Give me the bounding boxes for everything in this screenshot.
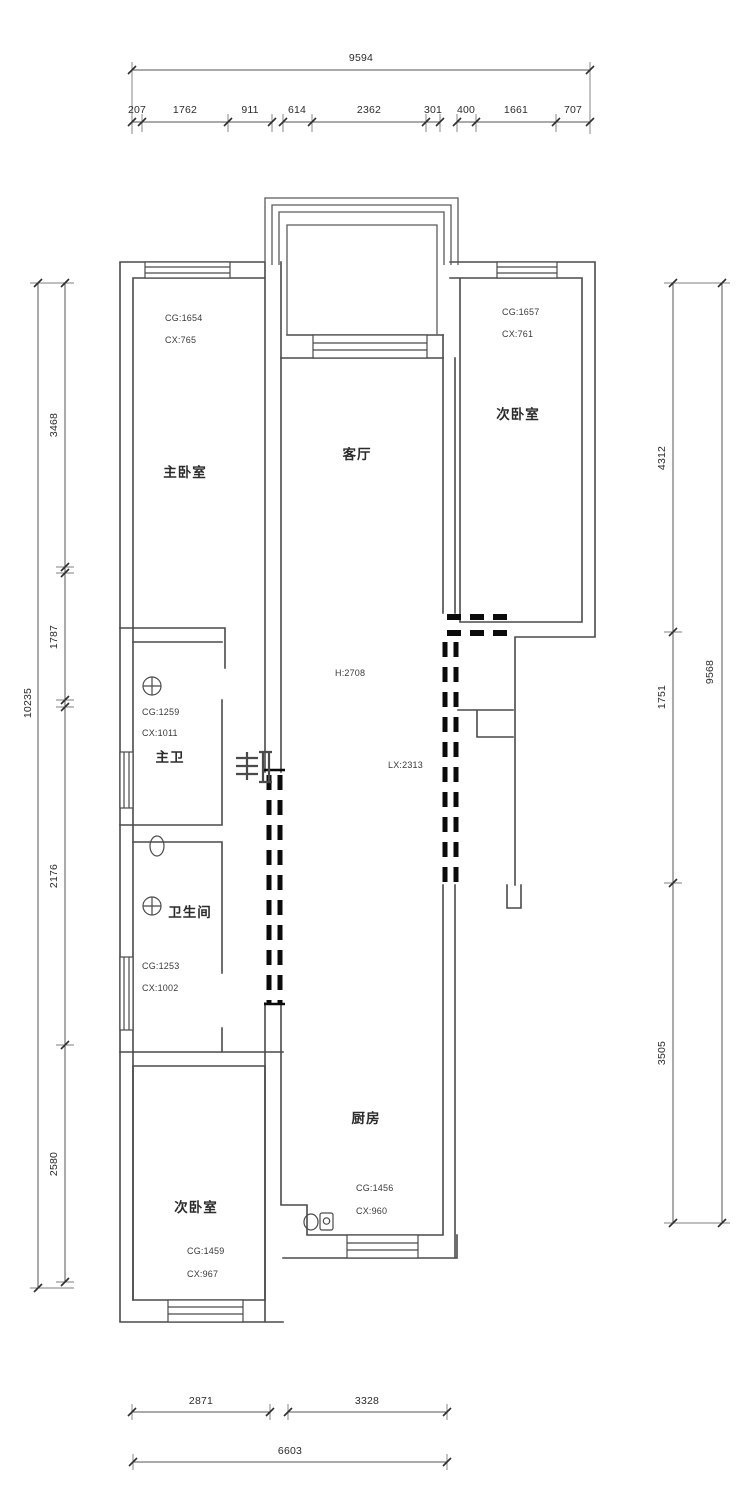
dim-bottom-seg-1: 3328 bbox=[355, 1395, 379, 1407]
window-frame bbox=[497, 262, 557, 278]
dim-top-seg-4: 2362 bbox=[357, 104, 381, 116]
window-frame bbox=[120, 957, 133, 1030]
balcony-rail-inner bbox=[279, 212, 444, 265]
floor-plan-canvas: 9594 207 1762 911 614 2362 301 400 1661 … bbox=[0, 0, 740, 1500]
dim-top-seg-1: 1762 bbox=[173, 104, 197, 116]
window-master-top bbox=[145, 262, 230, 278]
room-labels: 主卧室 CG:1654 CX:765 次卧室 CG:1657 CX:761 客厅… bbox=[142, 307, 540, 1279]
window-living-balcony bbox=[313, 335, 427, 358]
window-master-bath-left bbox=[120, 752, 133, 808]
window-bedroom-sw-bottom bbox=[168, 1300, 243, 1322]
room-label-kitchen: 厨房 bbox=[352, 1110, 381, 1126]
meter-box bbox=[320, 1213, 333, 1230]
anno-cx-bedroom-sw: CX:967 bbox=[187, 1269, 218, 1279]
room-label-living: 客厅 bbox=[342, 446, 372, 462]
floor-plan-page: 9594 207 1762 911 614 2362 301 400 1661 … bbox=[0, 0, 740, 1500]
dim-right-seg-2: 3505 bbox=[656, 1041, 668, 1065]
kitchen-pipe-icon bbox=[304, 1214, 318, 1230]
dim-top-seg-6: 400 bbox=[457, 104, 475, 116]
dim-left-seg-0: 3468 bbox=[48, 413, 60, 437]
bathroom-door-knob-icon bbox=[150, 836, 164, 856]
dim-top-total: 9594 bbox=[349, 52, 373, 64]
anno-cx-bathroom: CX:1002 bbox=[142, 983, 178, 993]
dim-left-total: 10235 bbox=[22, 688, 34, 718]
floor-drain-icon bbox=[143, 897, 161, 915]
dim-top-seg-7: 1661 bbox=[504, 104, 528, 116]
anno-cg-master-bath: CG:1259 bbox=[142, 707, 179, 717]
balcony-rail-outer bbox=[265, 198, 458, 265]
dashed-wall-living-right bbox=[445, 642, 456, 883]
anno-cx-master-bedroom: CX:765 bbox=[165, 335, 196, 345]
dashed-wall-living-left bbox=[269, 775, 280, 1003]
anno-cg-bedroom-ne: CG:1657 bbox=[502, 307, 539, 317]
dim-right-seg-1: 1751 bbox=[656, 685, 668, 709]
dim-right-total: 9568 bbox=[704, 660, 716, 684]
window-bathroom-left bbox=[120, 957, 133, 1030]
windows bbox=[120, 262, 557, 1322]
room-label-master-bath: 主卫 bbox=[156, 749, 185, 765]
dashed-wall-entry-horizontal bbox=[447, 617, 516, 633]
dim-left-seg-3: 2580 bbox=[48, 1152, 60, 1176]
dim-left-seg-1: 1787 bbox=[48, 625, 60, 649]
anno-cx-bedroom-ne: CX:761 bbox=[502, 329, 533, 339]
dim-right-seg-0: 4312 bbox=[656, 446, 668, 470]
meter-dial bbox=[323, 1218, 329, 1224]
anno-lx-living: LX:2313 bbox=[388, 760, 423, 770]
dim-left-seg-2: 2176 bbox=[48, 864, 60, 888]
balcony bbox=[265, 198, 458, 335]
anno-cg-bedroom-sw: CG:1459 bbox=[187, 1246, 224, 1256]
dashed-walls bbox=[264, 617, 516, 1004]
window-frame bbox=[347, 1235, 418, 1258]
window-frame bbox=[313, 335, 427, 358]
balcony-rail-middle bbox=[272, 205, 451, 265]
radiator-bars bbox=[236, 752, 258, 780]
dim-top-seg-2: 911 bbox=[241, 104, 258, 116]
anno-cx-master-bath: CX:1011 bbox=[142, 728, 178, 738]
dim-bottom-total: 6603 bbox=[278, 1445, 302, 1457]
gas-meter-icon bbox=[320, 1213, 333, 1230]
window-frame bbox=[168, 1300, 243, 1322]
anno-cg-bathroom: CG:1253 bbox=[142, 961, 179, 971]
anno-cx-kitchen: CX:960 bbox=[356, 1206, 387, 1216]
room-label-master-bedroom: 主卧室 bbox=[163, 464, 207, 480]
room-label-bedroom-ne: 次卧室 bbox=[496, 406, 540, 422]
window-frame bbox=[145, 262, 230, 278]
dim-top-seg-5: 301 bbox=[424, 104, 442, 116]
window-frame bbox=[120, 752, 133, 808]
room-label-bedroom-sw: 次卧室 bbox=[174, 1199, 218, 1215]
anno-cg-kitchen: CG:1456 bbox=[356, 1183, 393, 1193]
dim-top-seg-8: 707 bbox=[564, 104, 582, 116]
anno-height-living: H:2708 bbox=[335, 668, 365, 678]
dim-top-seg-0: 207 bbox=[128, 104, 146, 116]
anno-cg-master-bedroom: CG:1654 bbox=[165, 313, 202, 323]
dim-top-seg-3: 614 bbox=[288, 104, 306, 116]
dim-bottom-seg-0: 2871 bbox=[189, 1395, 213, 1407]
floor-drain-icon bbox=[143, 677, 161, 695]
balcony-floor-line bbox=[287, 225, 437, 335]
window-kitchen-bottom bbox=[347, 1235, 418, 1258]
room-label-bathroom: 卫生间 bbox=[168, 904, 212, 920]
window-bedroom-ne-top bbox=[497, 262, 557, 278]
